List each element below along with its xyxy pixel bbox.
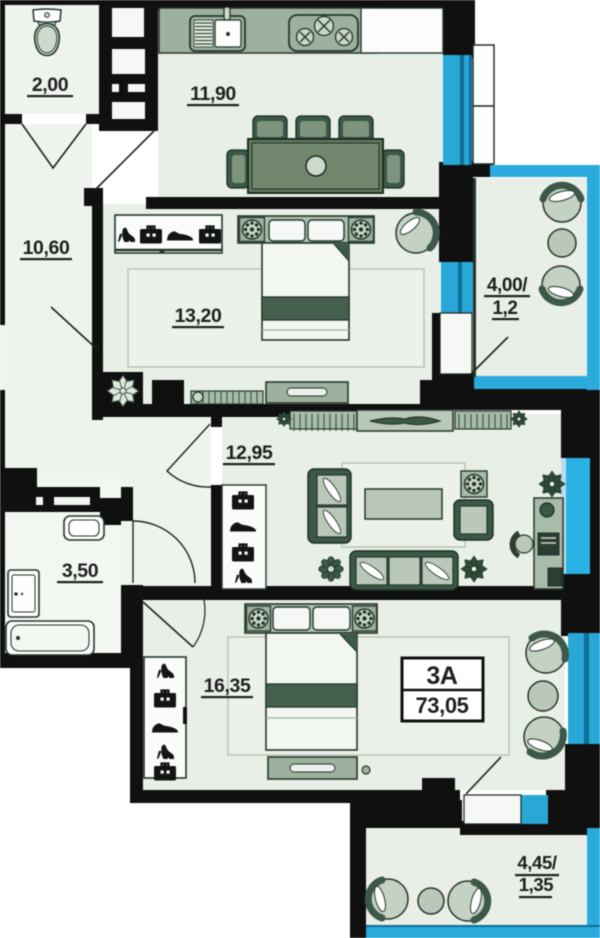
svg-text:2,00: 2,00 — [32, 74, 69, 96]
svg-text:12,95: 12,95 — [226, 442, 273, 464]
svg-text:10,60: 10,60 — [23, 237, 70, 259]
svg-text:4,00/: 4,00/ — [487, 275, 528, 296]
svg-text:16,35: 16,35 — [204, 675, 251, 697]
svg-text:11,90: 11,90 — [190, 83, 236, 105]
svg-text:73,05: 73,05 — [415, 693, 468, 718]
svg-text:13,20: 13,20 — [175, 305, 222, 327]
svg-text:4,45/: 4,45/ — [517, 852, 556, 873]
svg-text:3А: 3А — [426, 662, 458, 690]
svg-text:1,35: 1,35 — [519, 874, 554, 895]
svg-text:1,2: 1,2 — [492, 298, 517, 319]
svg-text:3,50: 3,50 — [62, 560, 99, 582]
